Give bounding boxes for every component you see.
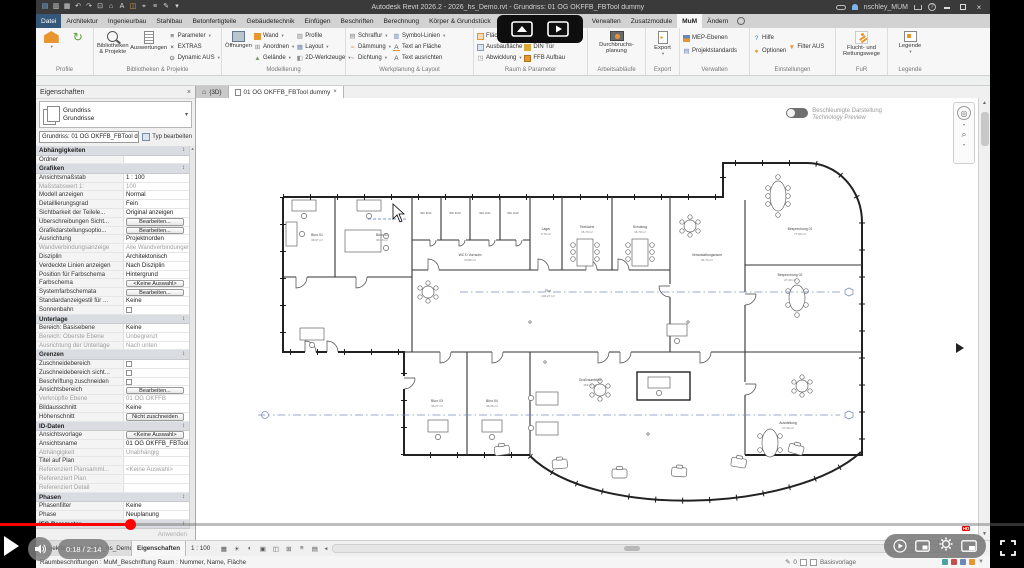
measure-icon[interactable]: ⌂ [107,3,115,11]
hscroll-thumb[interactable] [624,546,640,551]
legende-button[interactable]: Legende [895,29,925,65]
property-value[interactable]: <Keine Auswahl> [124,279,189,287]
tag-icon[interactable]: ◫ [129,3,137,11]
property-value[interactable]: Original anzeigen [124,209,189,217]
svg-text:10.80 m²: 10.80 m² [464,258,476,262]
2d-tools-icon: ◧ [296,55,303,62]
dynamic-button[interactable]: ⊙Dynamic AUS [169,53,220,63]
property-row: Beschriftung zuschneiden [36,378,189,387]
player-controls-pill: HD [884,534,986,558]
hilfe-button[interactable]: ?Hilfe [753,33,786,43]
property-value[interactable]: Projektnorden [124,235,189,243]
revit-window: ▤ ▥ ▦ ↶ ↷ ⊡ ⌂ A ◫ ⌖ ≡ ✎ ▾ Autodesk Revit… [36,0,990,568]
svg-text:Büro 01: Büro 01 [311,233,323,237]
svg-text:27.40 m²: 27.40 m² [784,278,796,282]
type-name: Grundriss [63,107,181,115]
hatch-icon: ▤ [349,33,356,40]
bottom-bar: Projektbrowser - 2026_hs_Demo.rvt Eigens… [36,540,990,556]
scale-control[interactable]: 1 : 100 [186,545,215,552]
ribbon-tab-beschriften[interactable]: Beschriften [336,14,379,28]
scroll-left-icon[interactable]: ◄ [323,546,328,552]
property-row: AbhängigkeitUnabhängig [36,449,189,458]
settings-button[interactable]: HD [939,537,953,556]
property-value[interactable]: Neuplanung [124,511,189,519]
text-on-face-icon: A [393,44,400,51]
property-value[interactable]: Bearbeiten... [124,386,189,394]
crop-region-icon[interactable]: ▣ [258,545,267,553]
property-edit-button[interactable]: Bearbeiten... [126,227,184,234]
property-row: Ansichtsname01 OG OKFFB_FBTool du... [36,440,189,449]
horizontal-scrollbar[interactable] [332,544,967,553]
dichtung-button[interactable]: ~Dichtung [349,53,391,63]
svg-text:WC D 02: WC D 02 [449,211,461,215]
panel-legende: Legende Legende [888,28,932,75]
svg-text:Büro 02: Büro 02 [376,233,388,237]
panel-label: Legende [888,65,932,75]
property-value[interactable]: Nach Disziplin [124,262,189,270]
property-value[interactable] [124,156,189,164]
svg-text:146.27 m²: 146.27 m² [541,294,555,298]
property-value[interactable]: Keine [124,404,189,412]
type-category: Grundrisse [63,115,181,123]
property-checkbox[interactable] [126,361,132,367]
property-label: Ausrichtung der Unterlage [36,342,124,350]
svg-text:77.80 m²: 77.80 m² [794,232,806,236]
chevron-down-icon[interactable]: ▾ [185,111,188,118]
pip-icon[interactable] [961,540,977,552]
arrange-icon: ⊞ [254,44,261,51]
ribbon-tab-datei[interactable]: Datei [36,14,61,28]
svg-text:36.27 m²: 36.27 m² [431,404,443,408]
open-icon[interactable]: ▥ [52,3,60,11]
svg-text:WC D Vorraum: WC D Vorraum [459,253,482,257]
property-section[interactable]: ID-Daten↕ [36,422,189,432]
property-row: Modell anzeigenNormal [36,191,189,200]
mep-ebenen-button[interactable]: MEP-Ebenen [683,33,737,43]
steering-wheel-icon[interactable]: ◎ [957,106,971,120]
help-icon[interactable]: ? [928,3,936,11]
property-label: Standardanzeigestil für ... [36,297,124,305]
ribbon-tab-einfügen[interactable]: Einfügen [299,14,335,28]
property-row: WandverbindungsanzeigeAlle Wandverbindun… [36,244,189,253]
property-checkbox[interactable] [126,307,132,313]
svg-text:Veranstaltungsraum: Veranstaltungsraum [692,253,722,257]
property-value[interactable]: Normal [124,191,189,199]
miniplayer-icon[interactable] [915,540,930,552]
tab-eigenschaften[interactable]: Eigenschaften [132,541,186,557]
svg-text:Teeküche: Teeküche [580,225,595,229]
profile-2d-button[interactable]: ▨Profile [296,31,350,41]
property-value[interactable]: Architektonisch [124,253,189,261]
property-row: Standardanzeigestil für ...Keine [36,297,189,306]
abwicklung-button[interactable]: ◳Abwicklung [477,53,522,63]
property-label: Referenziert Plan [36,475,124,483]
panel-label: Verwalten [680,65,749,75]
select-by-face-icon[interactable] [969,559,975,565]
finish-area-icon [477,44,484,51]
worksharing-icon[interactable]: ▤ [310,545,319,553]
close-button[interactable]: × [974,3,984,12]
property-label: Disziplin [36,253,124,261]
property-label: Position für Farbschema [36,271,124,279]
property-row: Zuschneidebereich [36,360,189,369]
property-label: Detaillierungsgrad [36,200,124,208]
insulation-icon: ≈ [349,44,356,51]
property-row: Grafikdarstellungsoptio...Bearbeiten... [36,227,189,236]
property-label: Verdeckte Linien anzeigen [36,262,124,270]
profile-icon: ▨ [296,33,303,40]
property-label: Überschreibungen Sicht... [36,218,124,226]
property-value[interactable] [124,306,189,314]
panel-einstellungen: ?Hilfe ●Optionen ▼Filter AUS Einstellung… [750,28,836,75]
property-value[interactable] [124,378,189,386]
property-row: Ordner [36,156,189,165]
property-label: Sonnenbahn [36,306,124,314]
property-row: Referenziert Plansamml...<Keine Auswahl> [36,466,189,475]
filter-icon: ▼ [788,44,795,51]
new-file-icon[interactable]: ▤ [41,3,49,11]
property-row: Maßstabswert 1:100 [36,183,189,192]
parameter-button[interactable]: ≡Parameter [169,31,220,41]
text-icon[interactable]: A [118,3,126,11]
scroll-up-icon[interactable]: ▲ [979,98,990,109]
property-label: Bereich: Oberste Ebene [36,333,124,341]
property-value[interactable]: Keine [124,297,189,305]
dynamic-icon: ⊙ [169,55,176,62]
anordnen-button[interactable]: ⊞Anordnen [254,42,294,52]
property-row: Ansichtsmaßstab1 : 100 [36,174,189,183]
svg-text:36.07 m²: 36.07 m² [311,238,323,242]
property-value[interactable] [124,360,189,368]
property-row: DisziplinArchitektonisch [36,253,189,262]
edit-type-icon [142,133,150,141]
layout-button[interactable]: ▦Layout [296,42,350,52]
temporary-hide-icon[interactable]: ⊞ [284,545,293,553]
property-row: Titel auf Plan [36,457,189,466]
projektstandards-button[interactable]: ▤Projektstandards [683,46,737,56]
panel-label: Profile [36,65,93,75]
customize-icon[interactable]: ▾ [173,3,181,11]
svg-text:Lager: Lager [542,227,552,231]
property-label: Modell anzeigen [36,191,124,199]
property-value[interactable]: Unbegrenzt [124,333,189,341]
editable-only-icon[interactable]: ✎ [785,559,790,566]
properties-palette: Eigenschaften × Grundriss Grundrisse ▾ G… [36,86,196,540]
player-overlay-pill [497,15,583,43]
text-ausrichten-button[interactable]: AText ausrichten [393,53,445,63]
property-value[interactable]: Alle Wandverbindungen ... [124,244,189,252]
oeffnungen-button[interactable]: Öffnungen [225,29,252,65]
close-properties-icon[interactable]: × [187,89,191,96]
auswertungen-button[interactable]: Auswertungen [131,29,167,65]
property-value[interactable] [124,475,189,483]
property-label: Ansichtsvorlage [36,431,124,439]
share-screen-icon[interactable] [511,21,533,37]
property-value[interactable]: Bearbeiten... [124,218,189,226]
property-label: Ausrichtung [36,235,124,243]
status-bar: Raumbeschriftungen : MuM_Beschriftung Ra… [36,556,990,568]
extras-icon: × [169,44,176,51]
extras-button[interactable]: ×EXTRAS [169,42,220,52]
property-value[interactable]: 01 OG OKFFB_FBTool du... [124,440,189,448]
property-edit-button[interactable]: Bearbeiten... [126,218,184,225]
panel-arbeitsablaeufe: Durchbruchs-planung Arbeitsabläufe [588,28,646,75]
svg-text:36.26 m²: 36.26 m² [486,404,498,408]
profile-house-icon [44,31,59,43]
close-view-icon[interactable]: × [333,89,337,95]
property-row: Referenziert Detail [36,484,189,493]
svg-text:16.73 m²: 16.73 m² [581,230,593,234]
panel-fur: Flucht- und Rettungswege FuR [836,28,888,75]
instance-selector[interactable]: Grundriss: 01 OG OKFFB_FBTool dur▾ [39,131,139,143]
property-edit-button[interactable]: <Keine Auswahl> [126,431,184,438]
area-icon [477,33,484,40]
user-name[interactable]: nschley_MUM [864,4,908,11]
property-edit-button[interactable]: <Keine Auswahl> [126,280,184,287]
bibliotheken-projekte-button[interactable]: Bibliotheken & Projekte [97,29,129,65]
property-value[interactable]: Bearbeiten... [124,288,189,296]
redo-icon[interactable]: ↷ [85,3,93,11]
property-value[interactable]: Unabhängig [124,449,189,457]
accelerated-graphics-toggle[interactable]: Beschleunigte Darstellung Technology Pre… [786,108,882,122]
floor-plan: Büro 0136.07 m² Büro 0236.46 m² WC D Vor… [196,98,978,540]
svg-text:Ausstellung: Ausstellung [779,421,797,425]
minimize-button[interactable] [942,3,952,12]
ribbon-tab-stahlbau[interactable]: Stahlbau [151,14,187,28]
svg-text:Großraumbüro: Großraumbüro [579,378,601,382]
property-value[interactable]: 1 : 100 [124,174,189,182]
property-value[interactable]: Hintergrund [124,271,189,279]
symbol-lines-icon: ▥ [393,33,400,40]
property-checkbox[interactable] [126,370,132,376]
apply-button[interactable]: Anwenden [36,529,195,540]
family-type-icon [43,106,59,124]
fullscreen-button[interactable] [1000,540,1016,561]
property-row: BildausschnittKeine [36,404,189,413]
video-seekbar-progress [0,523,130,526]
visual-style-icon[interactable]: ▦ [219,545,228,553]
daemmung-button[interactable]: ≈Dämmung [349,42,391,52]
property-value[interactable]: Keine [124,324,189,332]
ribbon-tab-berechnung[interactable]: Berechnung [379,14,425,28]
property-label: Verknüpfte Ebene [36,395,124,403]
view-reference-arrow [956,343,964,353]
property-section[interactable]: Grenzen↕ [36,350,189,360]
property-value[interactable]: Keine [124,502,189,510]
ribbon-tab-verwalten[interactable]: Verwalten [587,14,626,28]
sync-icon[interactable]: ✎ [162,3,170,11]
schraffur-button[interactable]: ▤Schraffur [349,31,391,41]
ribbon-tab-gebäudetechnik[interactable]: Gebäudetechnik [241,14,299,28]
property-edit-button[interactable]: Bearbeiten... [126,387,184,394]
user-avatar-icon [852,4,858,10]
filter-status-icon[interactable]: ▼ [978,559,984,565]
property-row: Bereich: Oberste EbeneUnbegrenzt [36,333,189,342]
autoplay-icon[interactable] [893,539,907,553]
din-tuer-button[interactable]: DIN Tür [524,42,565,52]
durchbruchsplanung-button[interactable]: Durchbruchs-planung [593,29,641,65]
play-button[interactable] [4,536,19,556]
toggle-switch[interactable] [786,108,808,118]
cart-icon[interactable] [914,5,922,10]
help-circle-icon: ? [753,35,760,42]
view-control-bar: ▦ ☀ ◐ ▣ ◫ ⊞ ≡ ▤ [215,545,323,553]
svg-text:WC D 01: WC D 01 [420,211,432,215]
property-value[interactable]: Nach unten [124,342,189,350]
property-label: Beschriftung zuschneiden [36,378,124,386]
panel-verwalten: MEP-Ebenen ▤Projektstandards Verwalten [680,28,750,75]
ribbon-tab-zusatzmodule[interactable]: Zusatzmodule [626,14,677,28]
section-icon[interactable]: ≡ [151,3,159,11]
penetration-icon [610,31,624,41]
property-section[interactable]: Grafiken↕ [36,164,189,174]
svg-text:Besprechung 01: Besprechung 01 [788,227,813,231]
property-row: Überschreibungen Sicht...Bearbeiten... [36,218,189,227]
property-value[interactable]: 01 OG OKFFB [124,395,189,403]
property-label: Sichtbarkeit der Teilele... [36,209,124,217]
show-crop-icon[interactable]: ◫ [271,545,280,553]
property-section[interactable]: Phasen↕ [36,493,189,503]
ffb-aufbau-button[interactable]: FFB Aufbau [524,53,565,63]
svg-text:16.73 m²: 16.73 m² [634,230,646,234]
legend-icon [904,31,917,42]
bay-armchairs [494,441,805,478]
svg-text:Besprechung 02: Besprechung 02 [778,273,803,277]
property-row: Bereich: BasisebeneKeine [36,324,189,333]
drawing-canvas[interactable]: Büro 0136.07 m² Büro 0236.46 m² WC D Vor… [196,98,978,540]
symbol-linien-button[interactable]: ▥Symbol-Linien [393,31,445,41]
worksets-icon[interactable] [800,559,807,566]
undo-icon[interactable]: ↶ [74,3,82,11]
print-icon[interactable]: ⊡ [96,3,104,11]
property-value[interactable]: Fein [124,200,189,208]
svg-text:WC H 02: WC H 02 [507,211,519,215]
property-label: Bereich: Basisebene [36,324,124,332]
text-an-flaeche-button[interactable]: AText an Fläche [393,42,445,52]
filter-aus-button[interactable]: ▼Filter AUS [788,42,824,52]
svg-text:9.76 m²: 9.76 m² [541,232,551,236]
panel-label: Raum & Parameter [474,65,587,75]
gelaende-button[interactable]: ▲Gelände [254,53,294,63]
vertical-scrollbar[interactable]: ▲ ▼ [978,98,990,540]
property-value[interactable] [124,369,189,377]
search-binoculars-icon[interactable] [836,5,846,10]
property-label: Ansichtsname [36,440,124,448]
window-title: Autodesk Revit 2026.2 - 2026_hs_Demo.rvt… [186,4,830,11]
property-value[interactable]: Bearbeiten... [124,227,189,235]
svg-text:Büro 04: Büro 04 [486,399,498,403]
restore-button[interactable] [958,3,968,12]
property-value[interactable] [124,457,189,465]
property-row: Verknüpfte Ebene01 OG OKFFB [36,395,189,404]
property-label: Farbschema [36,279,124,287]
ribbon-tab-körper-grundstück[interactable]: Körper & Grundstück [424,14,496,28]
shadows-icon[interactable]: ◐ [245,545,254,553]
wand-button[interactable]: Wand [254,31,294,41]
svg-text:Büro 03: Büro 03 [431,399,443,403]
panel-werkplanung: ▤Schraffur ≈Dämmung ~Dichtung ▥Symbol-Li… [346,28,474,75]
video-seekbar-handle[interactable] [125,519,136,530]
volume-button[interactable] [28,537,52,561]
view-tab-bar: ⌂{3D} 01 OG OKFFB_FBTool dummy× [196,86,344,98]
video-seekbar-track[interactable] [0,523,1024,526]
properties-scrollbar[interactable]: ▲ [189,146,195,529]
ribbon-tab-ingenieurbau[interactable]: Ingenieurbau [103,14,152,28]
type-selector[interactable]: Grundriss Grundrisse ▾ [39,101,192,128]
property-edit-button[interactable]: Bearbeiten... [126,289,184,296]
toggle-label: Beschleunigte Darstellung [812,108,882,115]
select-underlay-icon[interactable] [951,559,957,565]
property-value[interactable] [124,484,189,492]
property-label: Zuschneidebereich sicht... [36,369,124,377]
property-value[interactable]: 100 [124,183,189,191]
reveal-hidden-icon[interactable]: ≡ [297,545,306,553]
property-edit-button[interactable]: Nicht zuschneiden [126,413,184,420]
property-section[interactable]: Unterlage↕ [36,315,189,325]
3d-view-icon[interactable]: ⌖ [140,3,148,11]
zoom-icon[interactable]: ⌕ [961,129,966,140]
property-label: Abhängigkeit [36,449,124,457]
svg-text:163.77 m²: 163.77 m² [583,383,597,387]
status-text: Raumbeschriftungen : MuM_Beschriftung Ra… [40,559,246,566]
ribbon-tab-betonfertigteile[interactable]: Betonfertigteile [187,14,241,28]
view-tab-active[interactable]: 01 OG OKFFB_FBTool dummy× [229,86,344,98]
property-label: Grafikdarstellungsoptio... [36,227,124,235]
floating-player-icon[interactable] [547,21,569,37]
edit-count: 0 [793,559,797,566]
property-value[interactable]: Nicht zuschneiden [124,413,189,421]
select-pinned-icon[interactable] [960,559,966,565]
profile-button[interactable] [39,29,64,65]
property-section[interactable]: Abhängigkeiten↕ [36,146,189,156]
view-tab-3d[interactable]: ⌂{3D} [196,86,229,98]
sun-icon[interactable]: ☀ [232,545,241,553]
save-icon[interactable]: ▦ [63,3,71,11]
property-value[interactable]: <Keine Auswahl> [124,466,189,474]
fluchtwege-button[interactable]: Flucht- und Rettungswege [840,29,884,65]
optionen-button[interactable]: ●Optionen [753,46,786,56]
property-value[interactable]: <Keine Auswahl> [124,431,189,439]
edit-type-button[interactable]: Typ bearbeiten [142,133,192,141]
panel-label: Werkplanung & Layout [346,65,473,75]
property-row: AusrichtungProjektnorden [36,235,189,244]
profile-sync-button[interactable]: ↻ [66,29,91,65]
property-label: Maßstabswert 1: [36,183,124,191]
properties-grid: Abhängigkeiten↕OrdnerGrafiken↕Ansichtsma… [36,146,189,529]
2d-werkzeuge-button[interactable]: ◧2D-Werkzeuge [296,53,350,63]
svg-text:Schulung: Schulung [633,225,647,229]
property-checkbox[interactable] [126,379,132,385]
modify-selection-icon[interactable] [737,17,745,25]
property-row: Ausrichtung der UnterlageNach unten [36,342,189,351]
ausbauflaeche-button[interactable]: Ausbaufläche [477,42,522,52]
panel-label: Arbeitsabläufe [588,65,645,75]
sealing-icon: ~ [349,55,356,62]
property-row: Zuschneidebereich sicht... [36,369,189,378]
ribbon-tab-ändern[interactable]: Ändern [702,14,733,28]
export-button[interactable]: Export [649,29,676,65]
property-label: Systemfarbschemata [36,288,124,296]
property-label: Phase [36,511,124,519]
ribbon-tab-architektur[interactable]: Architektur [61,14,103,28]
select-links-icon[interactable] [942,559,948,565]
scrollbar-thumb[interactable] [981,112,989,146]
property-label: Referenziert Detail [36,484,124,492]
design-options-icon[interactable] [810,559,817,566]
property-row: HöhenschnittNicht zuschneiden [36,413,189,422]
parameter-icon: ≡ [169,33,176,40]
ribbon-tab-mum[interactable]: MuM [677,14,702,28]
